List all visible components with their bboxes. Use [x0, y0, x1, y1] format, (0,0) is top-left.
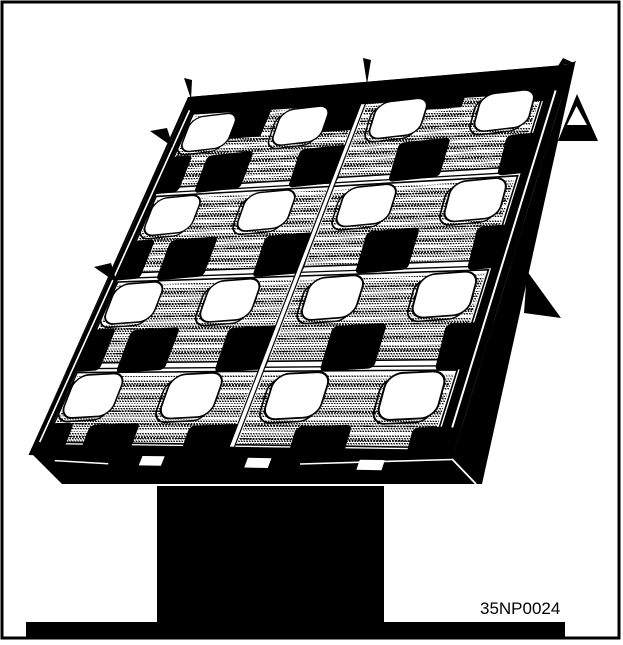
svg-text:35NP0024: 35NP0024 — [480, 599, 560, 618]
